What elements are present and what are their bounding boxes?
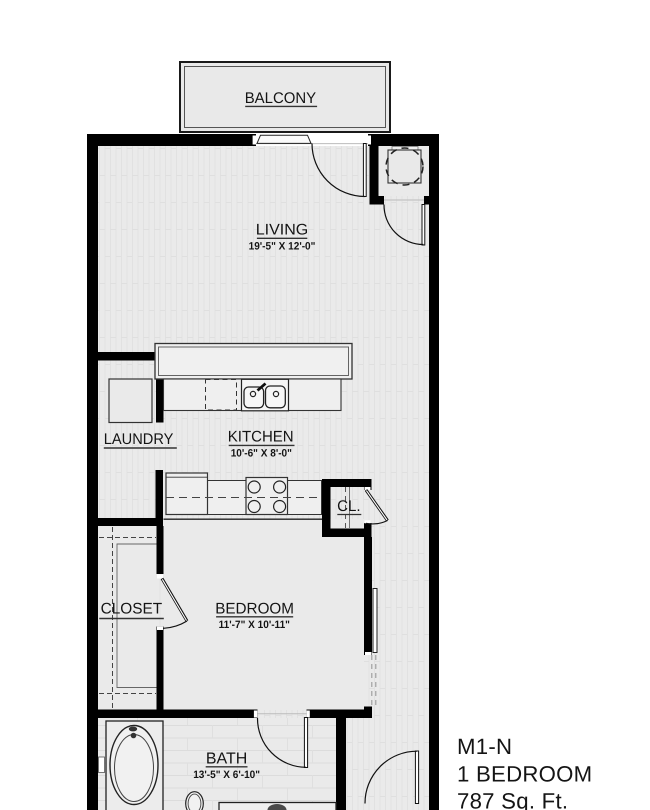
- svg-text:BALCONY: BALCONY: [245, 90, 316, 107]
- svg-text:BATH: BATH: [206, 750, 247, 767]
- svg-text:13'-5" X 6'-10": 13'-5" X 6'-10": [193, 769, 260, 781]
- svg-text:BEDROOM: BEDROOM: [215, 600, 294, 617]
- svg-text:1 BEDROOM: 1 BEDROOM: [457, 761, 592, 786]
- svg-text:CLOSET: CLOSET: [101, 601, 163, 618]
- svg-text:10'-6" X 8'-0": 10'-6" X 8'-0": [231, 448, 292, 460]
- svg-text:11'-7" X 10'-11": 11'-7" X 10'-11": [219, 619, 290, 631]
- svg-text:LAUNDRY: LAUNDRY: [104, 431, 174, 448]
- svg-text:LIVING: LIVING: [256, 222, 308, 239]
- svg-text:CL.: CL.: [337, 498, 360, 515]
- svg-text:19'-5" X 12'-0": 19'-5" X 12'-0": [249, 240, 316, 252]
- svg-text:KITCHEN: KITCHEN: [228, 429, 294, 446]
- svg-text:M1-N: M1-N: [457, 734, 512, 759]
- svg-text:787 Sq. Ft.: 787 Sq. Ft.: [457, 789, 568, 810]
